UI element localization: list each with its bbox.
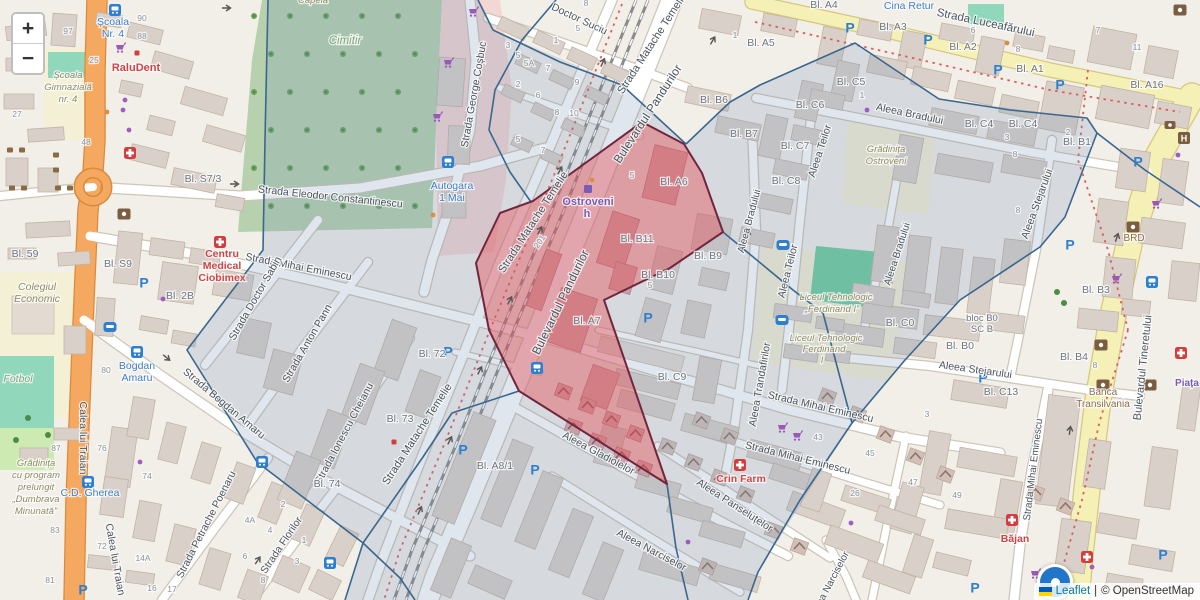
map-label: Calea lui Traian [77,402,89,475]
map-label: 3 [506,40,511,50]
medical-cross-icon [124,147,136,159]
map-label: Bl. C7 [781,140,810,152]
map-label: 8 [1093,360,1098,370]
map-label: 81 [45,575,55,585]
parking-icon: P [970,580,979,596]
map-label: Bl. B10 [641,269,675,281]
bank-icon [1127,222,1140,233]
map-label: 5 [516,50,521,60]
parking-icon: P [458,442,467,458]
parking-icon: P [1055,77,1064,93]
map-label: Școala [97,16,129,28]
parking-icon: P [923,32,932,48]
map-label: Bl. B0 [946,340,974,352]
parking-icon: P [1133,154,1142,170]
map-label: 5 [576,23,581,33]
map-label: 47 [908,477,918,487]
ukraine-flag-icon [1039,587,1052,596]
map-label: Bl. A7 [573,315,601,327]
hotel-icon: H [1178,132,1190,144]
map-label: Crin Farm [716,473,766,485]
poi-dot-purple [686,540,691,545]
bus-stop-icon [256,456,268,468]
map-label: „Dumbrava [12,494,60,505]
map-label: nr. 4 [59,94,78,105]
map-label: 8 [555,107,560,117]
camera-icon [1165,121,1176,129]
medical-cross-icon [1006,514,1018,526]
map-label: SC B [971,324,993,335]
attribution-bar: Leaflet | © OpenStreetMap [1034,583,1200,600]
map-label: 7 [541,145,546,155]
poi-dot-purple [123,98,128,103]
map-label: 25 [89,55,99,65]
map-label: prelungit [17,482,55,493]
bus-stop-icon [109,4,121,16]
map-label: Transilvania [1076,399,1130,410]
bus-stop-icon [531,362,543,374]
map-label: Bl. 59 [12,248,39,260]
map-label: Ostroveni [866,156,908,167]
map-label: 11 [1133,42,1142,52]
map-label: 17 [167,584,177,594]
map-label: Bl. C0 [886,317,915,329]
map-label: 49 [952,490,962,500]
map-label: 1 [302,535,307,545]
map-label: Bl. C4 [965,118,994,130]
map-label: Bl. 74 [314,478,341,490]
map-label: Capela [298,0,328,6]
zoom-control: + − [11,12,45,75]
map-label: Bl. C13 [984,386,1019,398]
map-label: 7 [546,63,551,73]
parking-icon: P [993,62,1002,78]
map-label: 27 [12,109,22,119]
poi-dot-purple [121,108,126,113]
map-label: 45 [865,448,875,458]
map-label: Liceul Tehnologic [799,292,872,303]
bank-icon [118,209,131,220]
map-label: Ciobimex [198,272,245,284]
map-label: Bl. C9 [658,371,687,383]
map-label: Colegiul [18,281,57,293]
map-label: Bl. C4 [1009,118,1038,130]
medical-cross-icon [1081,551,1093,563]
bus-stop-icon [1146,276,1158,288]
map-label: RaluDent [112,62,161,74]
parking-icon: P [1065,237,1074,253]
map-label: 5 [516,134,521,144]
map-label: 7 [1096,25,1101,35]
map-label: 9 [575,77,580,87]
map-label: 6 [536,90,541,100]
poi-dot-purple [127,128,132,133]
map-label: 8 [1016,44,1021,54]
map-label: 74 [142,471,152,481]
poi-dot-purple [1176,153,1181,158]
map-label: 48 [81,137,91,147]
bus-stop-icon [131,346,143,358]
poi-dot-orange [1005,41,1010,46]
map-label: Bl. B9 [694,250,722,262]
map-label: Băjan [1001,533,1030,545]
map-label: Bl. C6 [796,99,825,111]
map-label: 83 [50,525,60,535]
map-label: Piața [1175,378,1199,389]
map-label: 6 [971,25,976,35]
map-label: 5 [630,170,635,180]
poi-dot-purple [161,297,166,302]
map-label: 5A [524,58,535,68]
map-label: BRD [1123,233,1144,244]
map-label: Bl. A2 [949,41,977,53]
poi-dot-orange [431,213,436,218]
map-label: Școala [53,70,82,81]
map-label: 14A [135,553,150,563]
parking-icon: P [643,310,652,326]
map-label: 80 [101,365,111,375]
map-label: 5 [648,280,653,290]
map-label: Bogdan [119,360,155,372]
poi-dot-purple [865,108,870,113]
map-label: Bl. S7/3 [185,173,222,185]
zoom-out-button[interactable]: − [13,44,43,73]
medical-cross-icon [214,236,226,248]
map-label: Bl. A3 [879,21,907,33]
map-label: Banca [1089,387,1118,398]
bus-stop-icon [324,557,336,569]
map-label: 72 [97,541,107,551]
map-label: Liceul Tehnologic [789,333,862,344]
bank-icon [1174,5,1187,16]
map-label: 8 [261,575,266,585]
bus-stop-icon [442,156,454,168]
poi-dot-purple [849,521,854,526]
map-label: Bl. B6 [700,94,728,106]
map-label: 4A [245,515,256,525]
map-label: Bl. C8 [772,175,801,187]
map-label: Bl. A6 [660,176,688,188]
map-label: Autogara [431,180,474,192]
map-label: Fotbol [3,373,33,385]
map-label: Economic [14,293,61,305]
map-label: Bl. B7 [730,128,758,140]
map-label: C.D. Gherea [61,487,120,499]
map-label: Bl. A16 [1130,79,1163,91]
svg-text:H: H [1181,134,1188,144]
map-label: Cina Retur [884,0,935,12]
map-label: Amaru [122,372,153,384]
poi-dot-orange [105,110,110,115]
map-label: Nr. 4 [102,28,124,40]
map-label: Grădinița [867,144,906,155]
map-label: Bl. A8/1 [477,460,513,472]
map-label: Ferdinand [803,344,846,355]
map-label: I [821,355,824,366]
map-label: Bl. A5 [747,37,775,49]
parking-icon: P [530,462,539,478]
map-label: 2 [281,499,286,509]
bank-icon [1095,340,1108,351]
poi-dot-purple [1090,565,1095,570]
map-label: Bl. B1 [1063,136,1091,148]
map-label: 4 [268,525,273,535]
map-label: 90 [137,13,147,23]
map-label: 3 [925,409,930,419]
map-label: 26 [850,488,860,498]
map-label: Bl. 2B [166,290,194,302]
map-label: Bl. C5 [837,76,866,88]
map-label: 3 [1005,132,1010,142]
map-label: 76 [97,443,107,453]
map-label: Minunată” [15,506,58,517]
poi-dot-purple [138,460,143,465]
medical-cross-icon [1175,347,1187,359]
map-label: 97 [63,26,73,36]
map-label: 8 [584,0,589,8]
map-label: 1 Mai [439,192,465,204]
map-label: bloc B0 [966,313,998,324]
map-label: 1 [554,35,559,45]
map-label: Bl. A4 [810,0,838,11]
map-label: Cimitir [329,35,363,47]
attribution-separator: | [1094,583,1097,600]
map-label: Bl. B4 [1060,351,1088,363]
parking-icon: P [78,582,87,598]
map-label: Bl. S9 [104,258,132,270]
map-label: 10 [569,108,579,118]
parking-icon: P [139,275,148,291]
map-label: 1 [860,90,865,100]
map-canvas[interactable]: PPPPPPPPPPPPPPPHStrada Eleodor Constanti… [0,0,1200,600]
map-label: Bl. 73 [387,413,414,425]
zoom-in-button[interactable]: + [13,14,43,44]
map-label: Gimnazială [44,82,92,93]
map-label: Centru [205,248,239,260]
map-label: 8 [1016,205,1021,215]
map-label: 87 [51,443,61,453]
map-label: „Ferdinand I” [804,304,860,315]
poi-dot-orange [590,178,595,183]
osm-attribution: © OpenStreetMap [1101,583,1194,600]
parking-icon: P [1158,547,1167,563]
parking-icon: P [845,20,854,36]
map-label: cu program [12,470,60,481]
map-label: Ostroveni [562,196,613,208]
map-label: 1 [733,30,738,40]
map-label: 88 [137,31,147,41]
map-label: 2 [1066,127,1071,137]
map-label: Bl. B11 [620,233,653,245]
map-label: Bl. A1 [1016,63,1044,75]
map-label: Bl. 72 [419,348,446,360]
map-label: h [584,208,591,220]
leaflet-map[interactable]: PPPPPPPPPPPPPPPHStrada Eleodor Constanti… [0,0,1200,600]
map-label: Medical [203,260,242,272]
map-label: 43 [813,432,823,442]
map-label: 3 [295,556,300,566]
map-label: 2 [516,79,521,89]
map-label: 16 [147,583,157,593]
map-label: Bl. B3 [1082,284,1110,296]
car-icon [776,315,789,325]
car-icon [104,322,117,332]
map-label: 8 [1013,149,1018,159]
leaflet-link[interactable]: Leaflet [1056,583,1091,600]
map-label: Grădinița [17,458,56,469]
map-label: 6 [243,551,248,561]
medical-cross-icon [734,459,746,471]
